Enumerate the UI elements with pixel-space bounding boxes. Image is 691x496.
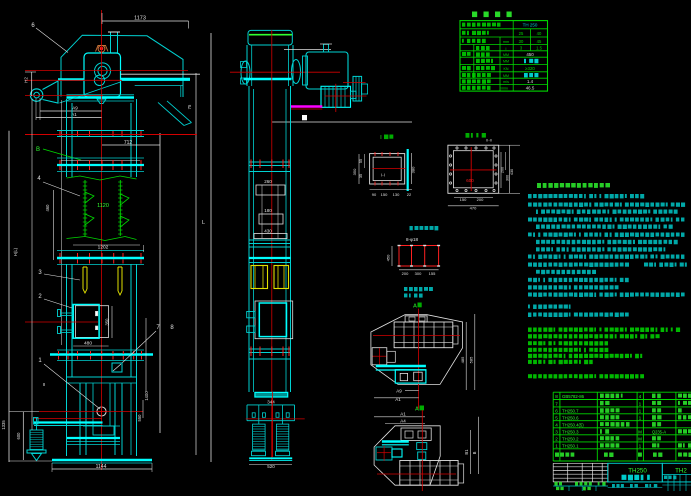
svg-text:M: M (638, 437, 642, 442)
svg-text:200: 200 (501, 167, 505, 173)
svg-text:8: 8 (555, 394, 558, 399)
svg-text:35: 35 (359, 174, 363, 178)
svg-text:1335: 1335 (1, 420, 6, 430)
svg-text:450: 450 (386, 254, 391, 261)
svg-text:4: 4 (555, 423, 558, 428)
svg-text:A: A (415, 407, 419, 413)
svg-text:350: 350 (352, 168, 357, 175)
svg-text:mm: mm (503, 40, 509, 44)
svg-text:200: 200 (477, 197, 484, 202)
svg-text:55: 55 (359, 159, 363, 163)
svg-text:A1: A1 (400, 412, 406, 417)
svg-text:A1: A1 (395, 397, 401, 402)
svg-text:TH250.7: TH250.7 (562, 409, 579, 414)
svg-text:155: 155 (429, 271, 436, 276)
svg-text:II-II: II-II (486, 139, 491, 143)
svg-text:8-φ18: 8-φ18 (406, 237, 418, 242)
svg-text:TH250: TH250 (628, 468, 647, 475)
svg-text:6: 6 (555, 409, 558, 414)
svg-text:H2: H2 (24, 77, 29, 83)
svg-text:344: 344 (267, 400, 275, 405)
svg-text:3: 3 (555, 430, 558, 435)
svg-text:75: 75 (187, 104, 192, 109)
svg-text:TH2: TH2 (675, 468, 687, 475)
svg-text:150: 150 (381, 192, 388, 197)
svg-text:300: 300 (506, 175, 510, 181)
svg-text:5: 5 (555, 416, 558, 421)
svg-text:MM: MM (503, 53, 509, 57)
svg-text:1: 1 (555, 444, 558, 449)
svg-text:TH250.4(5): TH250.4(5) (562, 423, 584, 428)
svg-text:1.5: 1.5 (536, 46, 542, 51)
svg-text:712: 712 (124, 140, 133, 146)
svg-text:30: 30 (519, 39, 524, 44)
svg-text:MM: MM (503, 74, 509, 78)
svg-text:L: L (202, 220, 205, 226)
svg-text:600: 600 (16, 432, 21, 440)
svg-text:TH 250: TH 250 (523, 23, 538, 28)
svg-text:A9: A9 (396, 389, 402, 394)
svg-text:TH250.6: TH250.6 (562, 416, 579, 421)
svg-text:m/s: m/s (503, 80, 509, 84)
svg-text:TH250.2: TH250.2 (562, 437, 579, 442)
svg-text:II: II (43, 382, 46, 387)
svg-text:I: I (380, 135, 381, 141)
svg-text:TH250.3: TH250.3 (562, 430, 579, 435)
svg-text:300: 300 (415, 271, 422, 276)
svg-text:KN: KN (504, 67, 509, 71)
svg-text:45: 45 (537, 39, 542, 44)
svg-text:1144: 1144 (96, 464, 107, 470)
svg-text:Q235-A: Q235-A (652, 430, 666, 435)
svg-text:350: 350 (105, 318, 110, 326)
svg-text:B: B (472, 451, 477, 454)
svg-text:46.5: 46.5 (526, 86, 535, 91)
svg-text:A4: A4 (400, 418, 406, 423)
svg-text:A9: A9 (72, 106, 78, 111)
svg-text:H(L): H(L) (13, 247, 18, 256)
svg-text:130: 130 (393, 192, 400, 197)
svg-text:A: A (413, 304, 417, 310)
svg-text:7: 7 (555, 401, 558, 406)
svg-text:200: 200 (402, 271, 409, 276)
svg-text:22: 22 (407, 192, 412, 197)
svg-text:260: 260 (264, 179, 272, 184)
svg-text:r/min: r/min (500, 86, 508, 90)
svg-text:2: 2 (555, 437, 558, 442)
svg-text:B1: B1 (464, 449, 469, 455)
svg-text:1400: 1400 (144, 391, 149, 401)
svg-text:430: 430 (510, 169, 514, 175)
svg-text:550: 550 (137, 414, 142, 422)
svg-text:1202: 1202 (98, 245, 109, 251)
svg-text:600: 600 (466, 178, 474, 183)
svg-text:1173: 1173 (134, 16, 146, 22)
svg-text:M: M (638, 430, 642, 435)
svg-text:MM: MM (503, 60, 509, 64)
svg-text:25: 25 (519, 31, 524, 36)
svg-text:40: 40 (537, 31, 542, 36)
svg-text:1.4: 1.4 (527, 79, 534, 84)
svg-text:480: 480 (84, 341, 92, 347)
svg-text:GB5782-86: GB5782-86 (562, 394, 585, 399)
svg-text:380: 380 (411, 166, 416, 173)
svg-text:≥320: ≥320 (525, 66, 535, 71)
svg-text:460: 460 (45, 204, 50, 212)
svg-text:1120: 1120 (97, 203, 109, 209)
svg-text:470: 470 (470, 206, 477, 211)
svg-text:l: l (506, 46, 507, 51)
svg-text:90: 90 (372, 192, 377, 197)
svg-text:150: 150 (460, 197, 467, 202)
svg-text:485: 485 (460, 356, 465, 363)
svg-text:450: 450 (526, 52, 534, 57)
svg-text:180: 180 (264, 208, 272, 213)
svg-text:520: 520 (267, 464, 275, 469)
svg-text:430: 430 (264, 229, 272, 234)
svg-text:585: 585 (469, 356, 474, 363)
svg-text:I-I: I-I (381, 173, 385, 178)
svg-text:TH250.1: TH250.1 (562, 444, 579, 449)
svg-text:B: B (36, 147, 40, 153)
